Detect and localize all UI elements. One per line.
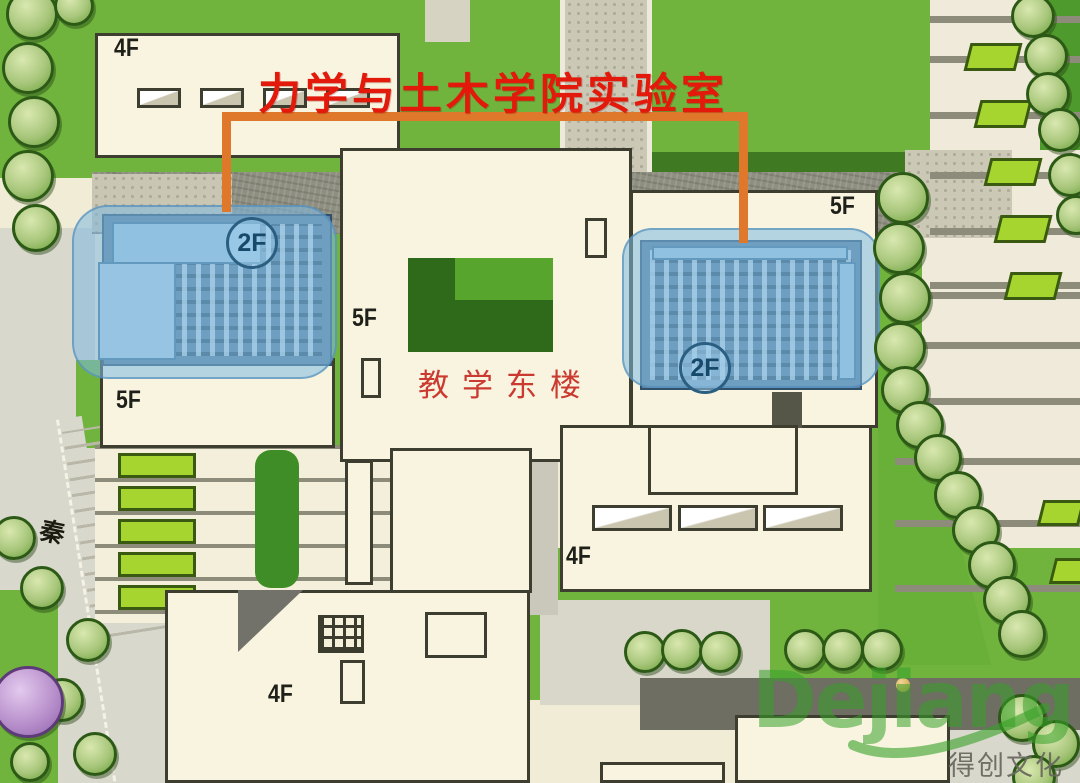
tree (2, 150, 54, 202)
skylight-outline (340, 660, 365, 704)
highlight-right-lab (622, 228, 880, 388)
skylight (137, 88, 181, 108)
tree (873, 222, 925, 274)
tree (12, 204, 60, 252)
tree (1038, 108, 1080, 152)
skylight (592, 505, 672, 531)
planter (984, 158, 1043, 186)
tree (73, 732, 117, 776)
skylight (763, 505, 843, 531)
skylight (678, 505, 758, 531)
planter (1049, 558, 1080, 584)
tree (20, 566, 64, 610)
floor-label-bottom-left: 4F (268, 680, 293, 709)
floor-badge-label: 2F (690, 354, 719, 383)
building-annex-small (361, 358, 381, 398)
floor-badge-right-2f: 2F (679, 342, 731, 394)
bracket-left-leg (222, 112, 231, 212)
planter (118, 519, 196, 544)
building-dark-block (772, 392, 802, 428)
tree (699, 631, 741, 673)
hedge-rounded (255, 450, 299, 588)
planter (964, 43, 1023, 71)
campus-site-plan: 2F 2F 4F 5F 5F 5F 4F 4F 教学东楼 秦 力学与土木学院实验… (0, 0, 1080, 783)
building-connector (390, 448, 532, 593)
watermark-subtext: 得创文化 (948, 744, 1064, 783)
tree (8, 96, 60, 148)
floor-badge-label: 2F (237, 229, 266, 258)
skylight (200, 88, 244, 108)
skylight-outline (425, 612, 487, 658)
building-annex-small (585, 218, 607, 258)
path-patch (425, 0, 470, 42)
annotation-title: 力学与土木学院实验室 (258, 60, 728, 122)
highlight-left-lab (72, 205, 337, 379)
grid-skylight (318, 615, 364, 653)
tree (10, 742, 50, 782)
tree (877, 172, 929, 224)
planter (1004, 272, 1063, 300)
tree (661, 629, 703, 671)
tree (998, 610, 1046, 658)
floor-label-top-left: 4F (114, 34, 139, 63)
floor-badge-left-2f: 2F (226, 217, 278, 269)
building-bottom-small (600, 762, 725, 783)
planter (994, 215, 1053, 243)
planter (974, 100, 1033, 128)
terrace-step (930, 16, 1080, 23)
central-building-label: 教学东楼 (418, 360, 594, 405)
planter (118, 552, 196, 577)
tree (66, 618, 110, 662)
courtyard-green-light (455, 258, 553, 300)
floor-label-center: 5F (352, 304, 377, 333)
tree (2, 42, 54, 94)
road-vertical (530, 450, 558, 615)
floor-label-bottom-right: 4F (566, 542, 591, 571)
courtyard-outline (648, 425, 798, 495)
corridor (345, 460, 373, 585)
planter (1037, 500, 1080, 526)
bracket-right-leg (739, 112, 748, 243)
planter (118, 486, 196, 511)
tree (879, 272, 931, 324)
planter (118, 453, 196, 478)
floor-label-left: 5F (116, 386, 141, 415)
floor-label-right: 5F (830, 192, 855, 221)
tree (624, 631, 666, 673)
